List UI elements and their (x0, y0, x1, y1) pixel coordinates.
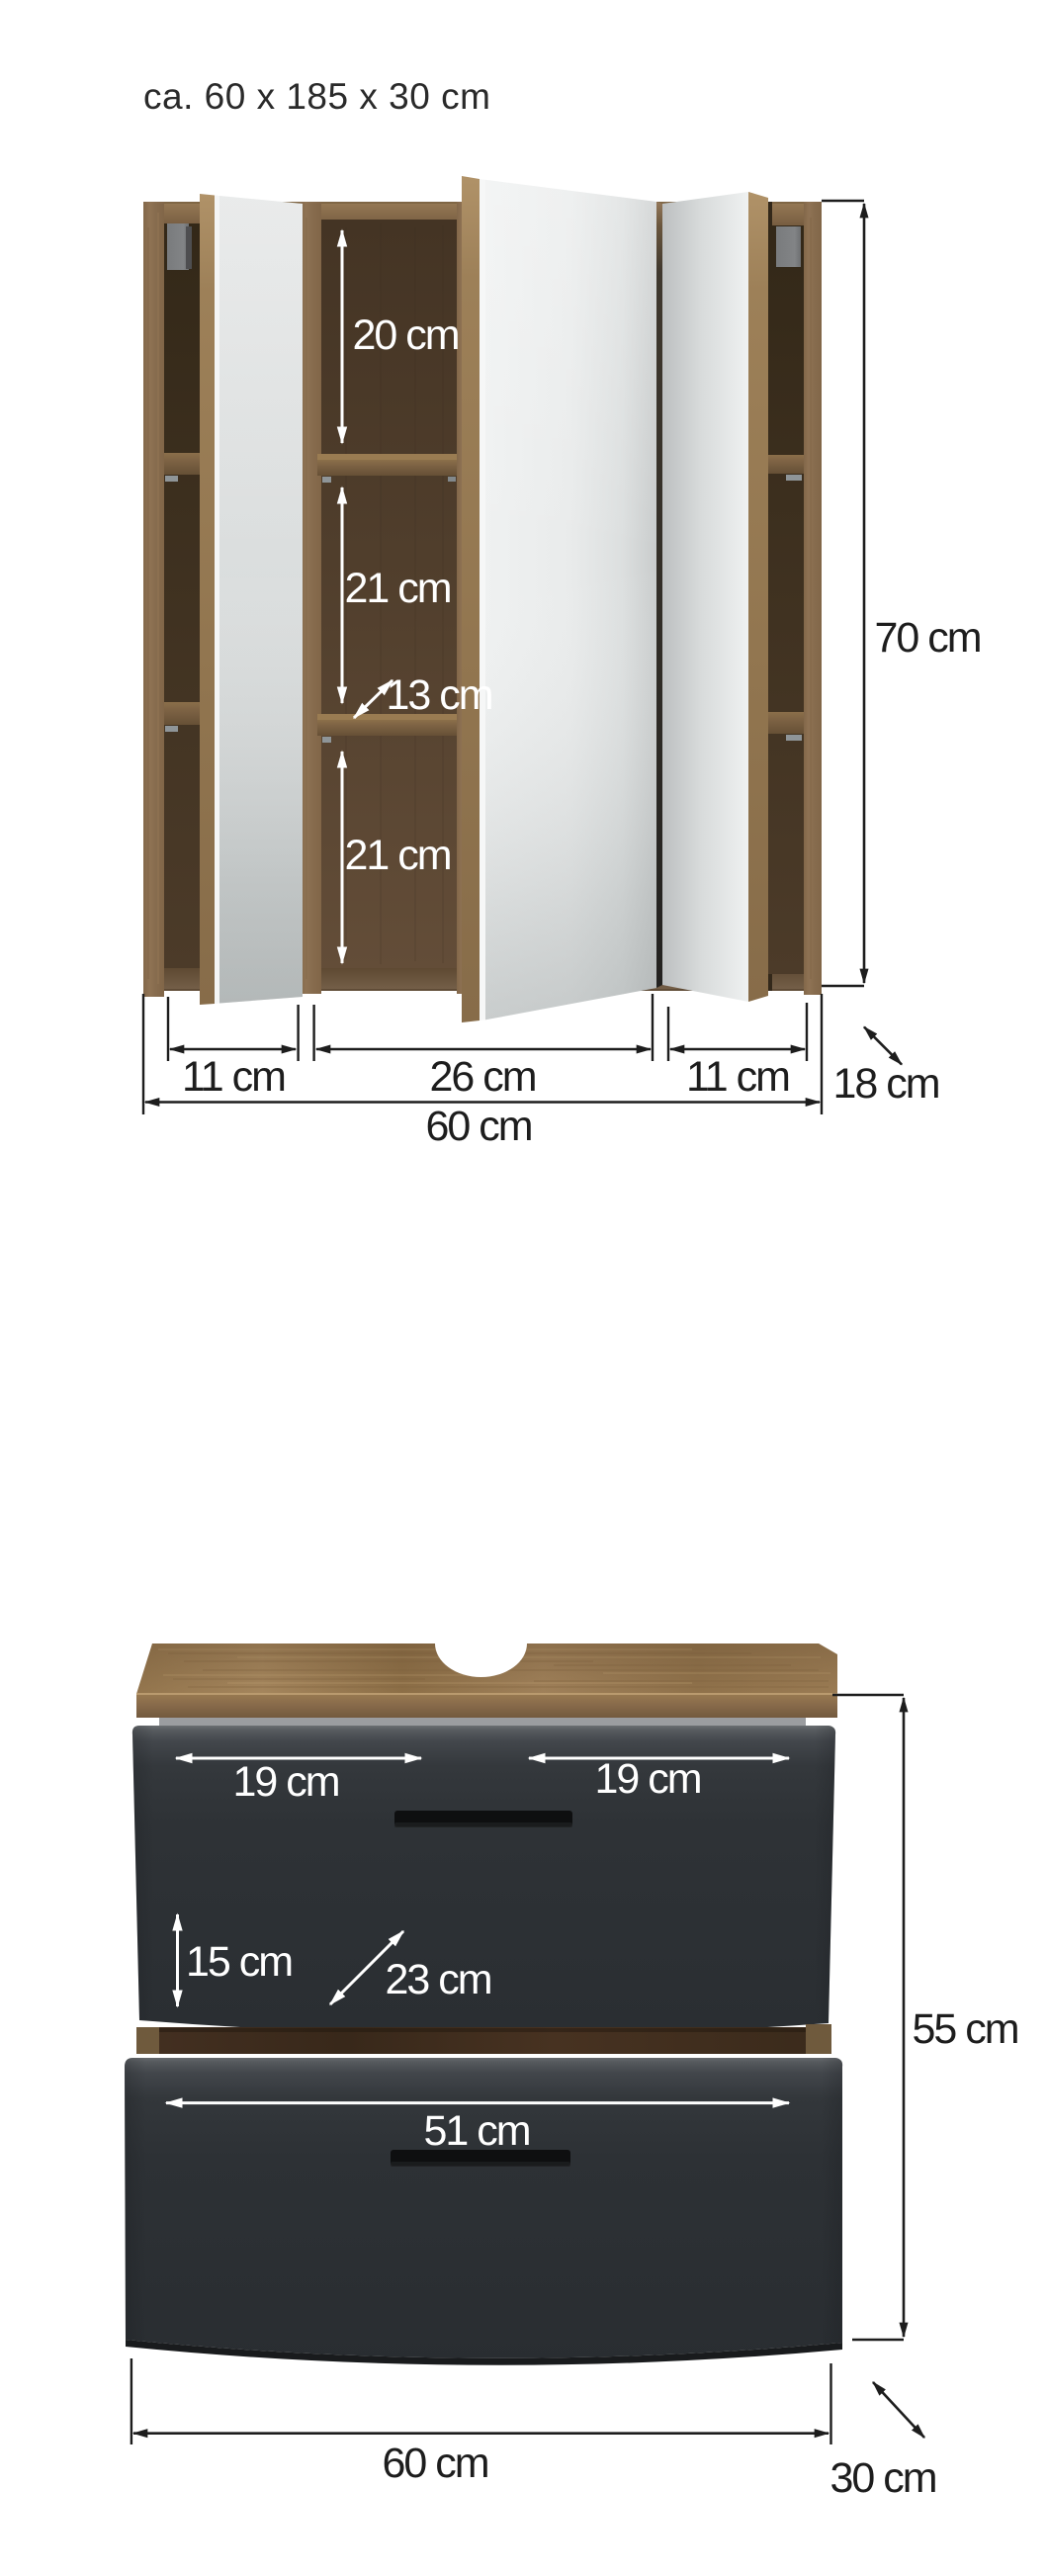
svg-text:ca. 60 x 185 x 30 cm: ca. 60 x 185 x 30 cm (143, 76, 490, 117)
svg-text:26 cm: 26 cm (429, 1053, 535, 1101)
svg-text:19 cm: 19 cm (594, 1755, 700, 1803)
svg-text:30 cm: 30 cm (829, 2454, 935, 2502)
svg-text:13 cm: 13 cm (386, 671, 491, 719)
svg-text:11 cm: 11 cm (686, 1053, 789, 1101)
svg-text:55 cm: 55 cm (912, 2005, 1017, 2053)
svg-text:23 cm: 23 cm (385, 1956, 490, 2003)
svg-text:21 cm: 21 cm (344, 832, 450, 879)
svg-text:15 cm: 15 cm (186, 1938, 292, 1986)
svg-text:18 cm: 18 cm (832, 1060, 938, 1108)
svg-text:21 cm: 21 cm (344, 565, 450, 612)
svg-text:60 cm: 60 cm (425, 1103, 531, 1150)
svg-text:60 cm: 60 cm (382, 2440, 487, 2487)
svg-text:70 cm: 70 cm (874, 614, 980, 662)
svg-text:20 cm: 20 cm (352, 311, 458, 359)
svg-text:11 cm: 11 cm (182, 1053, 285, 1101)
svg-text:19 cm: 19 cm (232, 1758, 338, 1806)
svg-text:51 cm: 51 cm (423, 2107, 529, 2155)
